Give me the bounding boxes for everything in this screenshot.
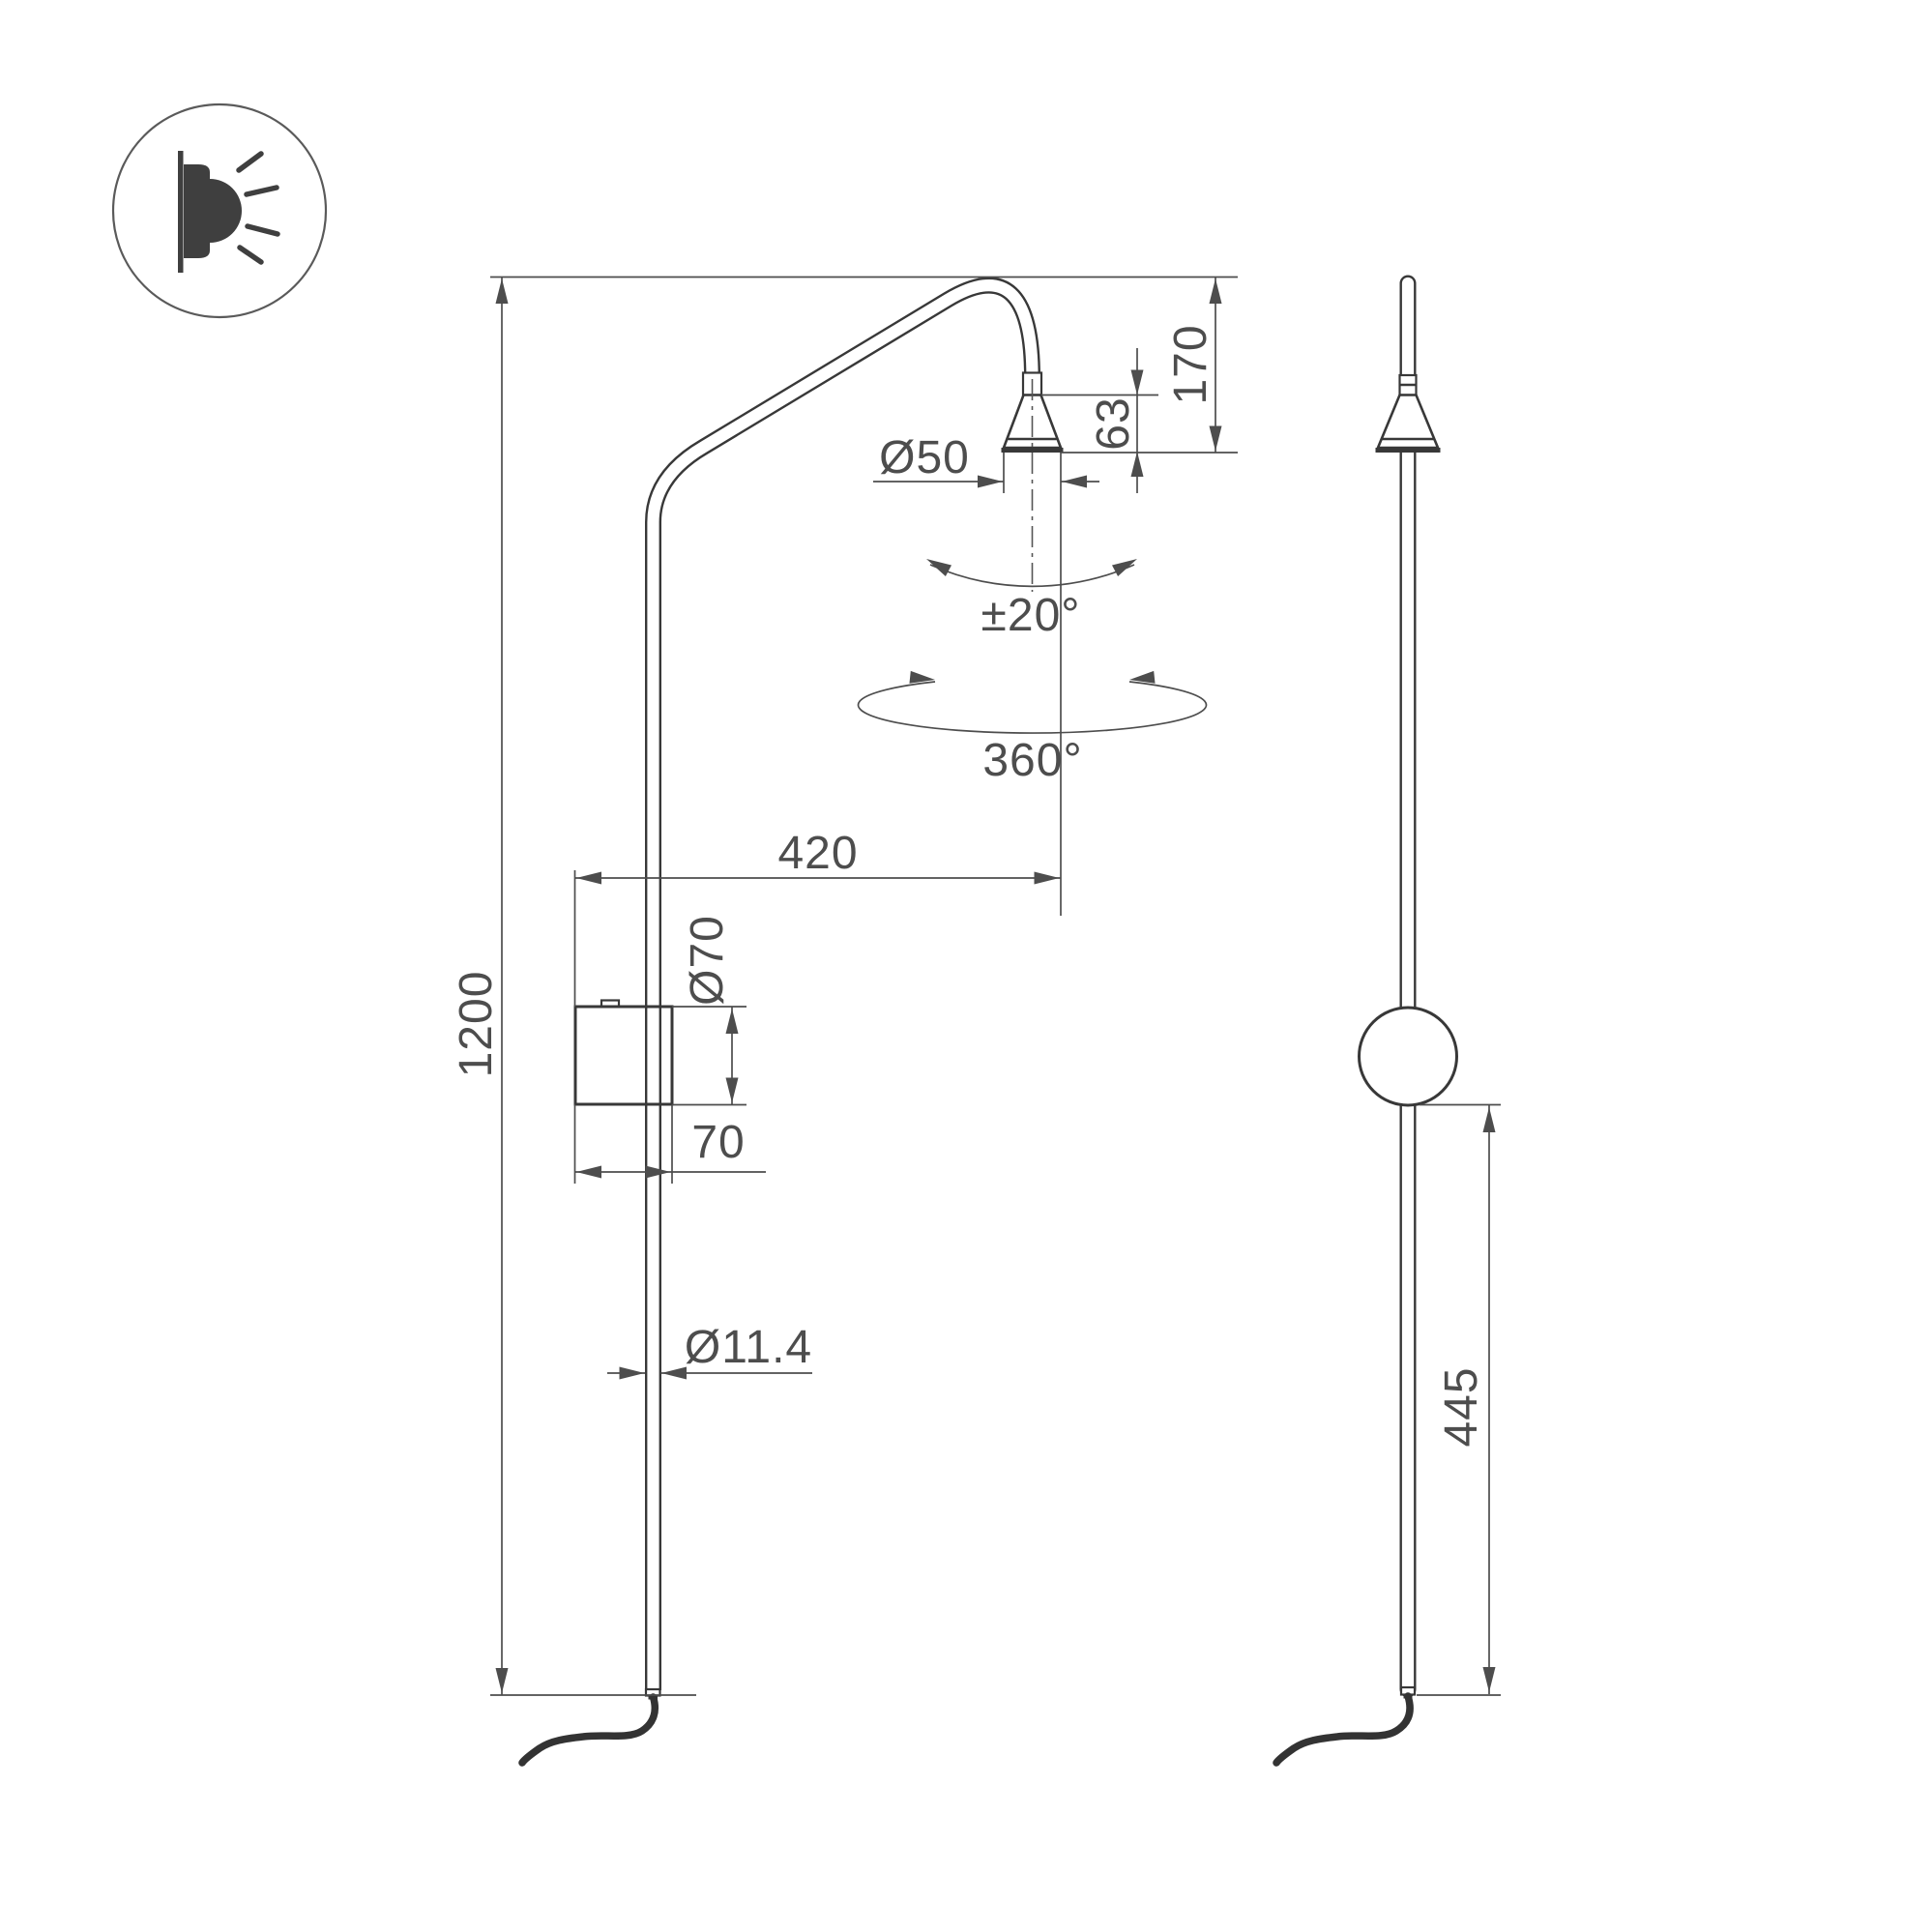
arrow-d50-right bbox=[1062, 476, 1087, 488]
dim-head-offset-height: 170 bbox=[1165, 324, 1216, 404]
arrow-170-bottom bbox=[1210, 426, 1222, 452]
side-canopy-circle bbox=[1360, 1008, 1457, 1105]
arrow-70-left bbox=[576, 1166, 601, 1179]
side-view bbox=[1276, 283, 1457, 1763]
arrow-d70-bottom bbox=[726, 1078, 739, 1103]
dimension-labels: 1200 420 Ø50 ±20° 360° 170 63 Ø70 70 Ø11… bbox=[451, 324, 1487, 1447]
front-power-cable bbox=[522, 1697, 655, 1763]
wall-light-icon bbox=[113, 104, 326, 317]
dim-overall-height: 1200 bbox=[451, 971, 502, 1078]
arrow-1200-bottom bbox=[496, 1668, 509, 1693]
dim-arm-reach: 420 bbox=[777, 828, 858, 879]
arrow-d70-top bbox=[726, 1009, 739, 1034]
arrow-d50-left bbox=[978, 476, 1003, 488]
dim-head-diameter: Ø50 bbox=[879, 432, 970, 483]
dimension-lines bbox=[490, 278, 1501, 1696]
arrow-420-right bbox=[1035, 872, 1060, 885]
drawing-page: 1200 420 Ø50 ±20° 360° 170 63 Ø70 70 Ø11… bbox=[0, 0, 1932, 1932]
arrow-tilt-left bbox=[923, 553, 951, 576]
arrow-tilt-right bbox=[1112, 553, 1140, 576]
front-view bbox=[522, 285, 1064, 1763]
dim-tilt-angle: ±20° bbox=[981, 590, 1081, 641]
dim-canopy-depth: 70 bbox=[691, 1117, 745, 1168]
dim-rotation-angle: 360° bbox=[982, 735, 1082, 786]
icon-wall bbox=[178, 151, 184, 273]
arrow-420-left bbox=[576, 872, 601, 885]
arrow-63-bottom bbox=[1131, 452, 1144, 477]
technical-drawing: 1200 420 Ø50 ±20° 360° 170 63 Ø70 70 Ø11… bbox=[0, 0, 1932, 1932]
dim-tube-diameter: Ø11.4 bbox=[685, 1322, 812, 1373]
icon-lamp-body bbox=[184, 164, 210, 258]
arrow-445-bottom bbox=[1483, 1667, 1496, 1692]
arrow-d114-right bbox=[661, 1367, 687, 1380]
rotation-ellipse bbox=[859, 682, 1207, 733]
arrow-170-top bbox=[1210, 278, 1222, 304]
dim-canopy-diameter: Ø70 bbox=[682, 915, 733, 1006]
side-power-cable bbox=[1276, 1696, 1410, 1763]
dim-head-cone-height: 63 bbox=[1088, 396, 1139, 450]
arrow-d114-left bbox=[620, 1367, 645, 1380]
dim-canopy-to-tube-end: 445 bbox=[1436, 1366, 1487, 1447]
arrow-445-top bbox=[1483, 1107, 1496, 1132]
arrow-1200-top bbox=[496, 278, 509, 304]
arrow-63-top bbox=[1131, 370, 1144, 395]
